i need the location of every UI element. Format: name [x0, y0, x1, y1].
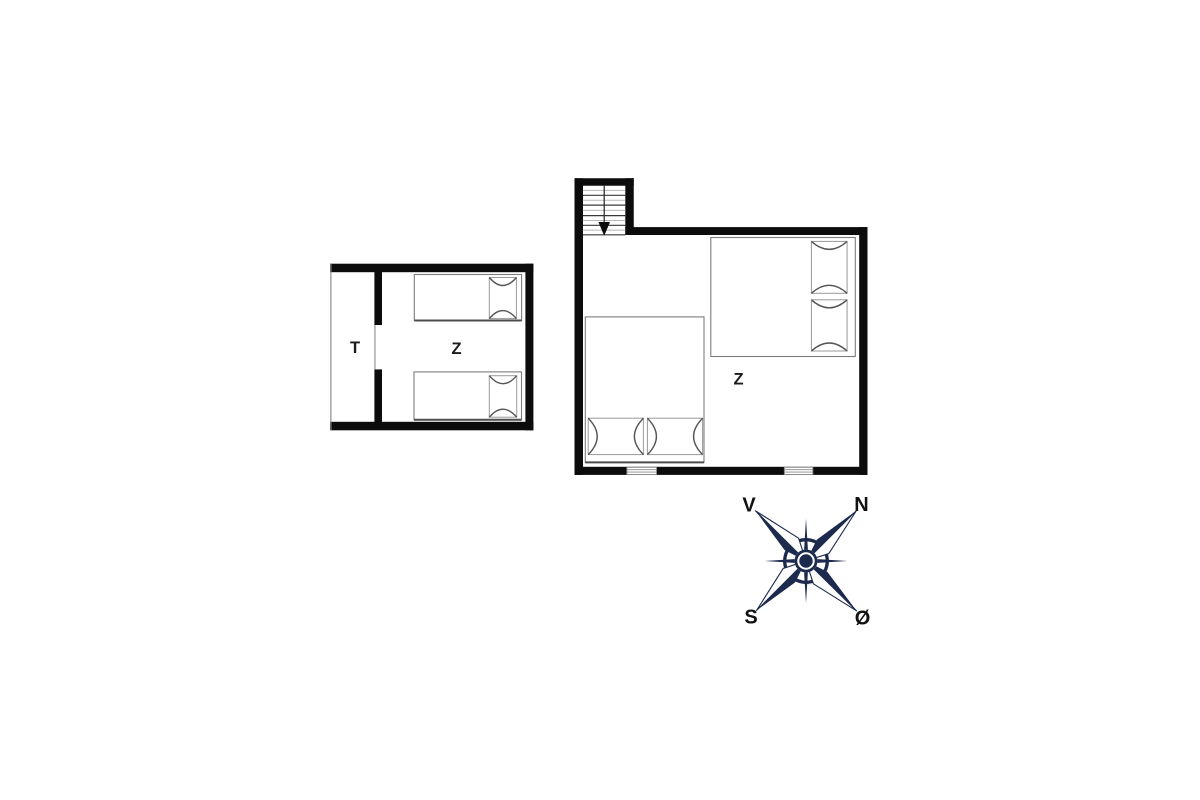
svg-text:Ø: Ø: [855, 608, 871, 630]
svg-text:Z: Z: [452, 340, 462, 358]
svg-text:Z: Z: [733, 370, 743, 388]
svg-text:N: N: [854, 494, 868, 516]
svg-text:V: V: [742, 495, 756, 517]
svg-text:T: T: [350, 339, 360, 357]
svg-text:S: S: [744, 607, 757, 629]
